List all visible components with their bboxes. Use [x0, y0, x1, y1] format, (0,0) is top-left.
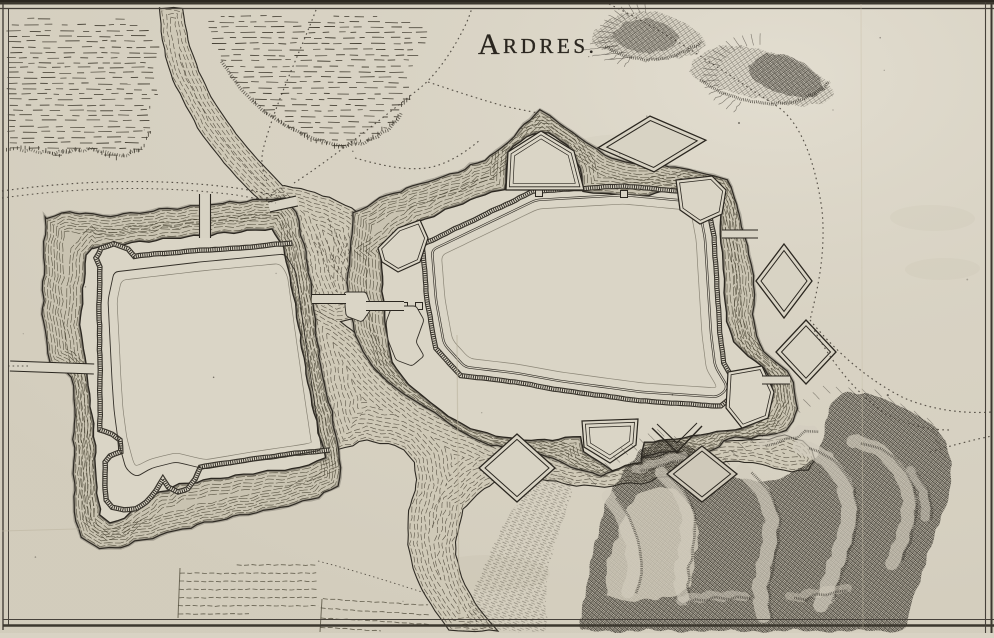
svg-text:RDRES.: RDRES. [503, 34, 598, 58]
svg-text:A: A [478, 28, 502, 61]
